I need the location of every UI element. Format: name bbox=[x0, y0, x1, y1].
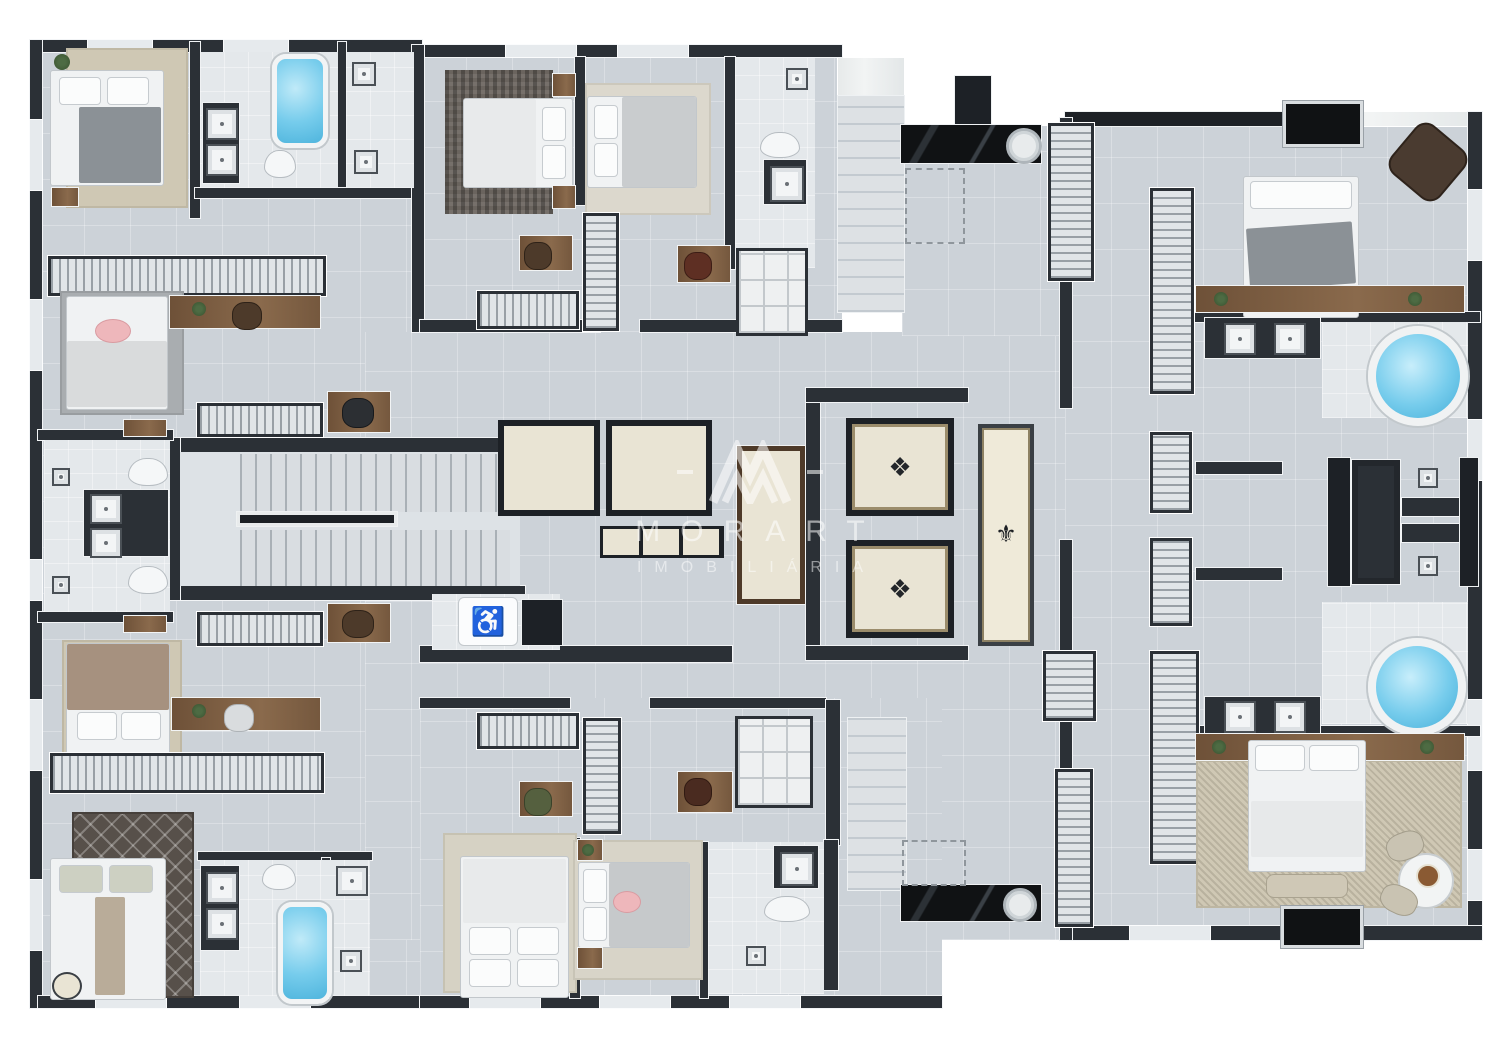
toilet bbox=[764, 896, 810, 922]
pillow bbox=[1255, 745, 1305, 771]
bathC-toilet bbox=[760, 132, 800, 158]
window bbox=[30, 120, 42, 190]
bottom-center-apartment-wall-right bbox=[650, 698, 826, 708]
window bbox=[30, 300, 42, 370]
service-shaft-vents bbox=[600, 526, 724, 558]
desk-chair bbox=[684, 778, 712, 806]
pillow bbox=[121, 712, 161, 740]
bedroomB-bed bbox=[587, 96, 697, 188]
bath1-sink bbox=[206, 144, 238, 176]
tv-panel bbox=[1281, 906, 1363, 948]
wall-bedroomB-bath-divider bbox=[725, 57, 735, 269]
left-hall-console bbox=[124, 420, 166, 436]
window bbox=[224, 40, 288, 52]
pillow-pink bbox=[95, 319, 131, 343]
wardrobe-rack bbox=[197, 403, 323, 437]
suite-core-bar bbox=[1402, 524, 1466, 542]
elevator-cab-service bbox=[737, 446, 805, 604]
service-stair-deck bbox=[848, 718, 906, 890]
sink bbox=[206, 908, 238, 940]
suite-core-column-left bbox=[1328, 458, 1350, 586]
wardrobe-rack bbox=[1150, 188, 1194, 394]
blanket bbox=[622, 97, 696, 187]
kitchen-sink-round bbox=[1003, 888, 1037, 922]
exterior-wall-top-right-dark bbox=[1065, 112, 1295, 126]
window bbox=[506, 45, 576, 57]
desk-chair bbox=[684, 252, 712, 280]
blanket bbox=[463, 859, 566, 923]
round-hot-tub-north bbox=[1368, 326, 1468, 426]
bottom-center-apartment-wall-left bbox=[420, 698, 570, 708]
pillow bbox=[542, 107, 566, 141]
nightstand bbox=[553, 186, 575, 208]
bedroom7-bed bbox=[66, 643, 170, 765]
bedroomA-bed bbox=[463, 98, 573, 188]
pillow bbox=[542, 145, 566, 179]
plant bbox=[1212, 740, 1226, 754]
wardrobe-rack bbox=[477, 291, 579, 329]
plant bbox=[582, 844, 594, 856]
pillow bbox=[583, 869, 607, 903]
wardrobe-rack bbox=[583, 213, 619, 331]
pillow bbox=[583, 907, 607, 941]
window bbox=[1130, 926, 1210, 940]
pillow bbox=[59, 77, 101, 105]
suite-north-shelf bbox=[1196, 286, 1464, 312]
nightstand bbox=[553, 74, 575, 96]
wall-bedroomA-B-divider bbox=[575, 57, 585, 205]
exterior-wall-bottom-right bbox=[1065, 926, 1482, 940]
suite-core-box bbox=[1352, 460, 1400, 584]
pillow bbox=[109, 865, 153, 893]
stair-treads-lower bbox=[240, 530, 510, 586]
wardrobe-rack bbox=[1150, 432, 1192, 513]
bedroom10-bed bbox=[578, 862, 690, 948]
bottom-center-wardrobe-wall bbox=[826, 700, 840, 845]
pillow bbox=[517, 959, 559, 987]
shower-head bbox=[340, 950, 362, 972]
hall-runner-rug: ⚜ bbox=[978, 424, 1034, 646]
wardrobe-rack bbox=[50, 753, 324, 793]
left-bath-toilet bbox=[128, 566, 168, 594]
elevator-shaft-left-2 bbox=[606, 420, 712, 516]
wardrobe-rack bbox=[1048, 123, 1094, 281]
blanket bbox=[79, 107, 161, 183]
bedroom1-bed bbox=[50, 70, 164, 186]
window bbox=[730, 996, 800, 1008]
pillow bbox=[594, 143, 618, 177]
window bbox=[618, 45, 688, 57]
shower-head bbox=[52, 576, 70, 594]
pillow bbox=[594, 105, 618, 139]
window bbox=[30, 560, 42, 600]
pillow bbox=[1309, 745, 1359, 771]
bottom-center-wardrobe-wall-2 bbox=[824, 840, 838, 990]
suite-south-bed bbox=[1248, 740, 1366, 872]
blanket bbox=[1246, 221, 1356, 290]
bathBL-bathtub bbox=[278, 902, 332, 1004]
wardrobe-rack bbox=[1150, 651, 1199, 864]
nightstand bbox=[578, 948, 602, 968]
elevator-shaft-left-1 bbox=[498, 420, 600, 516]
bedroom9-bed bbox=[460, 856, 569, 998]
sink bbox=[780, 852, 814, 886]
stair-railing bbox=[237, 512, 397, 526]
window bbox=[600, 996, 670, 1008]
elevator-cab-1: ❖ bbox=[846, 418, 954, 516]
blanket bbox=[1251, 801, 1363, 857]
floor-plan-render: ❖ ❖ ⚜ ♿ bbox=[0, 0, 1500, 1050]
pillow bbox=[59, 865, 103, 893]
sink bbox=[336, 866, 368, 896]
wardrobe-rack bbox=[583, 718, 621, 834]
shower-head bbox=[1418, 556, 1438, 576]
shower-head bbox=[746, 946, 766, 966]
wall-below-top-left-baths bbox=[195, 188, 422, 198]
wardrobe-rack bbox=[1150, 538, 1192, 626]
terrace-marble-landing bbox=[838, 58, 904, 98]
pillow bbox=[1250, 181, 1352, 209]
bottom-left-bath-wall-top bbox=[198, 852, 372, 860]
accessible-wc-counter bbox=[522, 600, 562, 645]
bedroom1-nightstand bbox=[52, 188, 78, 206]
bathC-sink bbox=[770, 166, 804, 202]
wardrobe-rack bbox=[1055, 769, 1093, 927]
desk-chair bbox=[524, 788, 552, 816]
blanket-runner bbox=[95, 897, 125, 995]
side-table-compass bbox=[52, 972, 82, 1000]
bedroom2-bed bbox=[66, 296, 168, 410]
plant bbox=[192, 302, 206, 316]
round-hot-tub-south bbox=[1368, 638, 1466, 736]
shower-head bbox=[786, 68, 808, 90]
table-plate bbox=[1416, 864, 1440, 888]
toilet bbox=[262, 864, 296, 890]
bath1-bathtub bbox=[272, 54, 328, 148]
window bbox=[1468, 850, 1482, 900]
suite-core-bar bbox=[1402, 498, 1466, 516]
blanket bbox=[67, 341, 167, 407]
suite-partition-stub-upper bbox=[1196, 462, 1282, 474]
desk-chair bbox=[232, 302, 262, 330]
bath2-shower-drain bbox=[354, 150, 378, 174]
wheelchair-icon: ♿ bbox=[471, 608, 506, 636]
laundry-cabinet bbox=[736, 248, 808, 336]
wall-bath-divider bbox=[338, 42, 346, 192]
kitchen-sink-round bbox=[1006, 128, 1042, 164]
bath2-sink bbox=[352, 62, 376, 86]
wardrobe-rack bbox=[1043, 651, 1096, 721]
bath1-toilet bbox=[264, 150, 296, 178]
entry-portal-column bbox=[955, 76, 991, 128]
pillow bbox=[77, 712, 117, 740]
elevator-core-wall-top bbox=[806, 388, 968, 402]
plant bbox=[54, 54, 70, 70]
desk-chair bbox=[224, 704, 254, 732]
fleur-de-lis-icon: ⚜ bbox=[995, 523, 1017, 547]
accessible-wc-sign: ♿ bbox=[458, 597, 518, 646]
left-bath-toilet bbox=[128, 458, 168, 486]
plant bbox=[1214, 292, 1228, 306]
stairwell-wall-top bbox=[168, 438, 525, 452]
elevator-cab-2: ❖ bbox=[846, 540, 954, 638]
bed-bench bbox=[1266, 874, 1348, 898]
left-hall-console bbox=[124, 616, 166, 632]
window bbox=[1468, 190, 1482, 260]
sink bbox=[1274, 323, 1306, 355]
sink bbox=[1224, 323, 1256, 355]
blanket bbox=[67, 644, 169, 710]
left-bath-sink bbox=[90, 494, 122, 524]
shower-head bbox=[52, 468, 70, 486]
window bbox=[30, 880, 42, 950]
desk-chair bbox=[342, 610, 374, 638]
elevator-core-wall-left bbox=[806, 388, 820, 660]
laundry-cabinet bbox=[735, 716, 813, 808]
plant bbox=[1408, 292, 1422, 306]
terrace-deck bbox=[838, 96, 904, 312]
shower-head bbox=[1418, 468, 1438, 488]
sink bbox=[206, 872, 238, 904]
desk-chair bbox=[524, 242, 552, 270]
blanket bbox=[464, 99, 536, 187]
elevator-core-wall-bottom bbox=[806, 646, 968, 660]
elevator-medallion-icon: ❖ bbox=[888, 454, 911, 480]
sink bbox=[1224, 701, 1256, 733]
sink bbox=[1274, 701, 1306, 733]
left-bath-sink bbox=[90, 528, 122, 558]
pillow bbox=[517, 927, 559, 955]
elevator-medallion-icon: ❖ bbox=[888, 576, 911, 602]
pillow bbox=[107, 77, 149, 105]
window bbox=[30, 700, 42, 770]
plant bbox=[1420, 740, 1434, 754]
table-projection-dashed bbox=[905, 168, 965, 244]
pillow-pink bbox=[613, 891, 641, 913]
wardrobe-rack bbox=[48, 256, 326, 296]
wardrobe-rack bbox=[197, 612, 323, 646]
bath1-sink bbox=[206, 108, 238, 140]
desk-chair bbox=[342, 398, 374, 428]
suite-partition-stub-lower bbox=[1196, 568, 1282, 580]
wardrobe-rack bbox=[477, 713, 579, 749]
stair-treads-upper bbox=[240, 454, 510, 512]
pillow bbox=[469, 959, 511, 987]
plant bbox=[192, 704, 206, 718]
suite-core-column-right bbox=[1460, 458, 1478, 586]
table-projection-dashed bbox=[902, 840, 966, 886]
pillow bbox=[469, 927, 511, 955]
tv-panel bbox=[1283, 101, 1363, 147]
